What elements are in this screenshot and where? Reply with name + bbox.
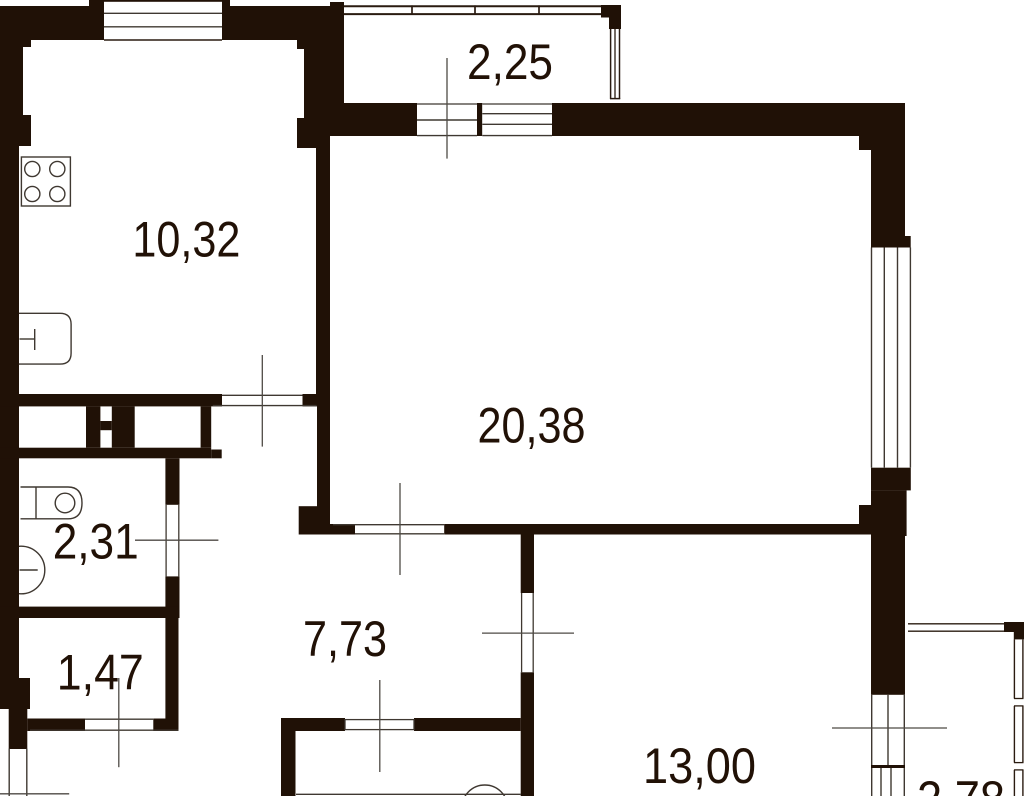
svg-text:20,38: 20,38 <box>478 398 586 454</box>
svg-text:2,25: 2,25 <box>467 34 553 90</box>
svg-text:7,73: 7,73 <box>303 611 387 667</box>
svg-text:2,78: 2,78 <box>917 771 1005 796</box>
svg-text:1,47: 1,47 <box>57 644 144 700</box>
svg-text:13,00: 13,00 <box>643 738 756 794</box>
svg-text:2,31: 2,31 <box>53 513 139 569</box>
svg-text:10,32: 10,32 <box>132 212 240 268</box>
